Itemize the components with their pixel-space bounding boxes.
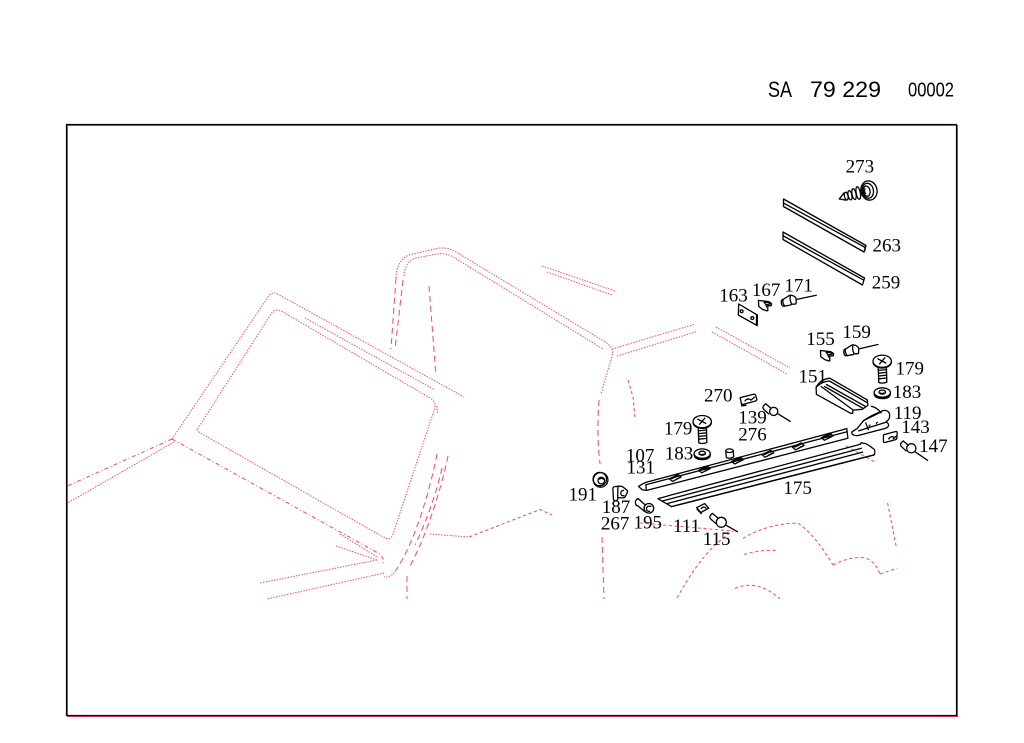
svg-text:151: 151: [799, 367, 828, 388]
svg-text:179: 179: [896, 358, 925, 379]
svg-text:111: 111: [673, 516, 700, 537]
svg-text:183: 183: [893, 382, 922, 403]
svg-text:259: 259: [872, 273, 901, 294]
svg-text:270: 270: [704, 386, 733, 407]
svg-text:163: 163: [719, 285, 748, 306]
svg-text:147: 147: [919, 436, 948, 457]
svg-text:195: 195: [634, 513, 663, 534]
svg-text:175: 175: [783, 478, 812, 499]
svg-text:191: 191: [569, 485, 598, 506]
svg-text:115: 115: [703, 529, 731, 550]
svg-text:155: 155: [806, 329, 835, 350]
svg-text:159: 159: [842, 322, 871, 343]
svg-text:00002: 00002: [908, 80, 954, 102]
svg-text:79 229: 79 229: [810, 77, 881, 102]
svg-text:276: 276: [738, 425, 767, 446]
svg-text:263: 263: [873, 236, 902, 257]
svg-text:131: 131: [627, 458, 656, 479]
svg-text:179: 179: [664, 419, 693, 440]
svg-text:183: 183: [665, 443, 694, 464]
svg-text:SA: SA: [768, 77, 792, 102]
svg-text:273: 273: [846, 157, 875, 178]
svg-text:167: 167: [752, 280, 781, 301]
svg-text:171: 171: [784, 276, 813, 297]
svg-text:267: 267: [601, 514, 630, 535]
